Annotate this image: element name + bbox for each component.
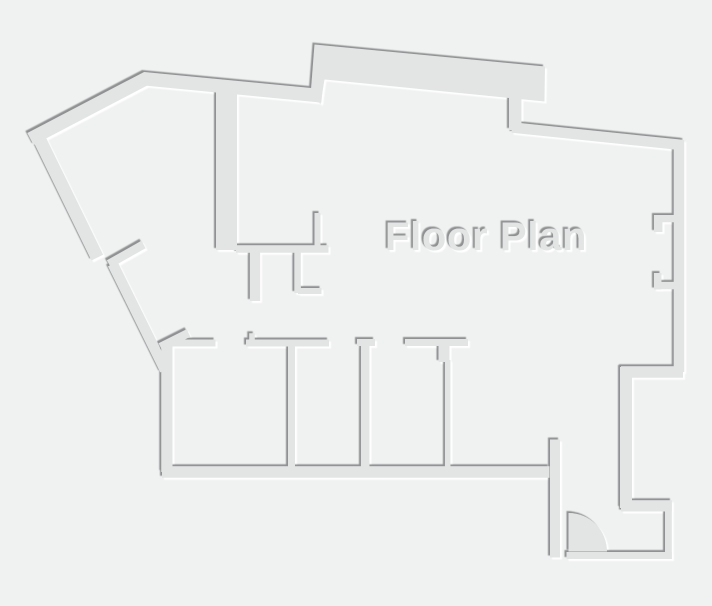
svg-text:Floor Plan: Floor Plan	[385, 215, 587, 259]
